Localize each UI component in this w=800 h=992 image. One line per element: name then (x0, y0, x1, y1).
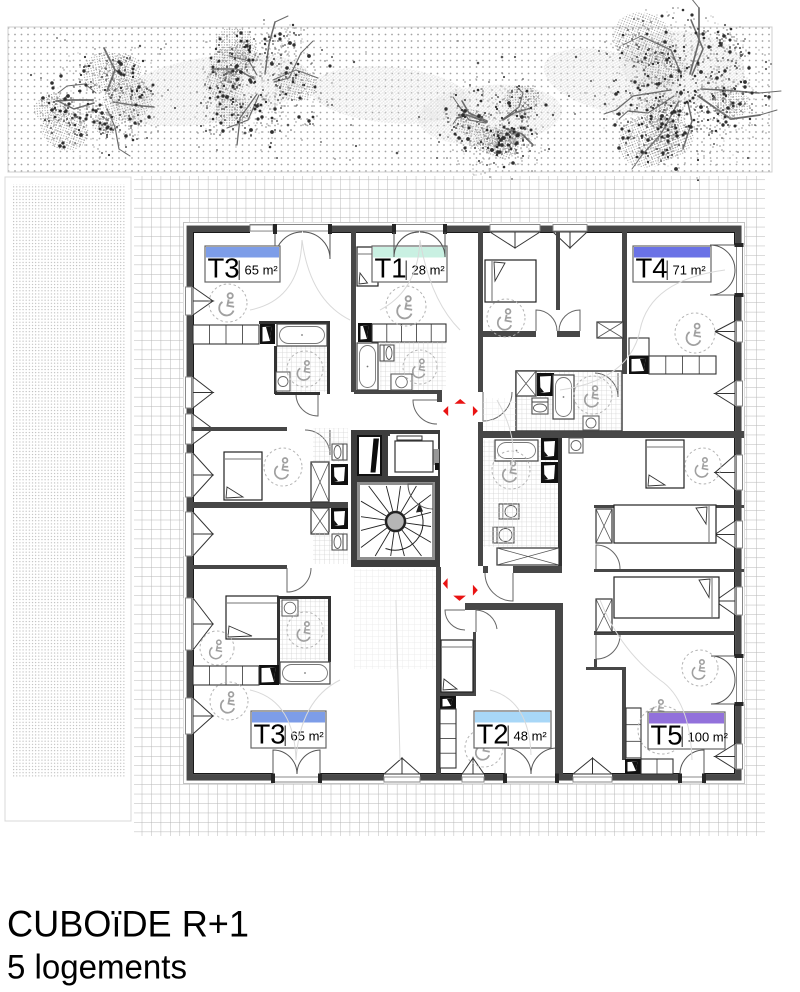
svg-text:48 m²: 48 m² (514, 729, 548, 744)
svg-text:5 logements: 5 logements (7, 949, 187, 987)
svg-text:T3: T3 (208, 253, 240, 284)
svg-text:CUBOïDE R+1: CUBOïDE R+1 (7, 903, 249, 945)
svg-text:T4: T4 (636, 253, 668, 284)
svg-text:100 m²: 100 m² (688, 730, 729, 745)
svg-text:T1: T1 (375, 253, 407, 284)
svg-text:65 m²: 65 m² (291, 729, 325, 744)
svg-text:T5: T5 (651, 720, 683, 751)
svg-text:65 m²: 65 m² (245, 263, 279, 278)
svg-text:T2: T2 (477, 719, 509, 750)
svg-text:T3: T3 (254, 719, 286, 750)
svg-text:71 m²: 71 m² (673, 263, 707, 278)
